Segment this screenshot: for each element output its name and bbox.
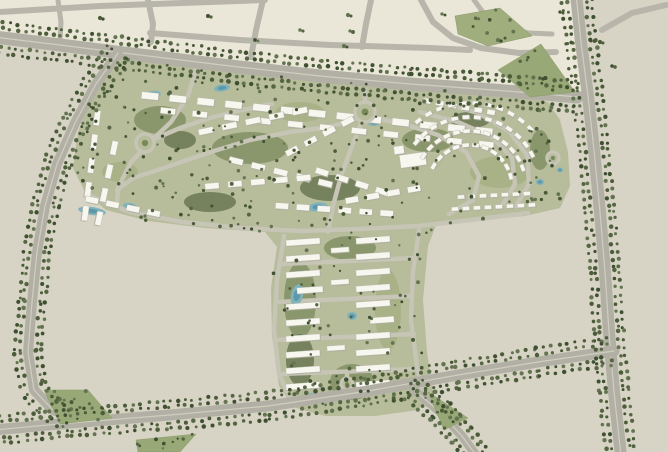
clubhouse-annex: [393, 145, 405, 155]
masterplan-map: [0, 0, 668, 452]
leg-M1: [331, 247, 350, 254]
leg-M3: [327, 345, 346, 352]
masterplan-viewport: [0, 0, 668, 452]
leg-M2: [331, 279, 350, 286]
